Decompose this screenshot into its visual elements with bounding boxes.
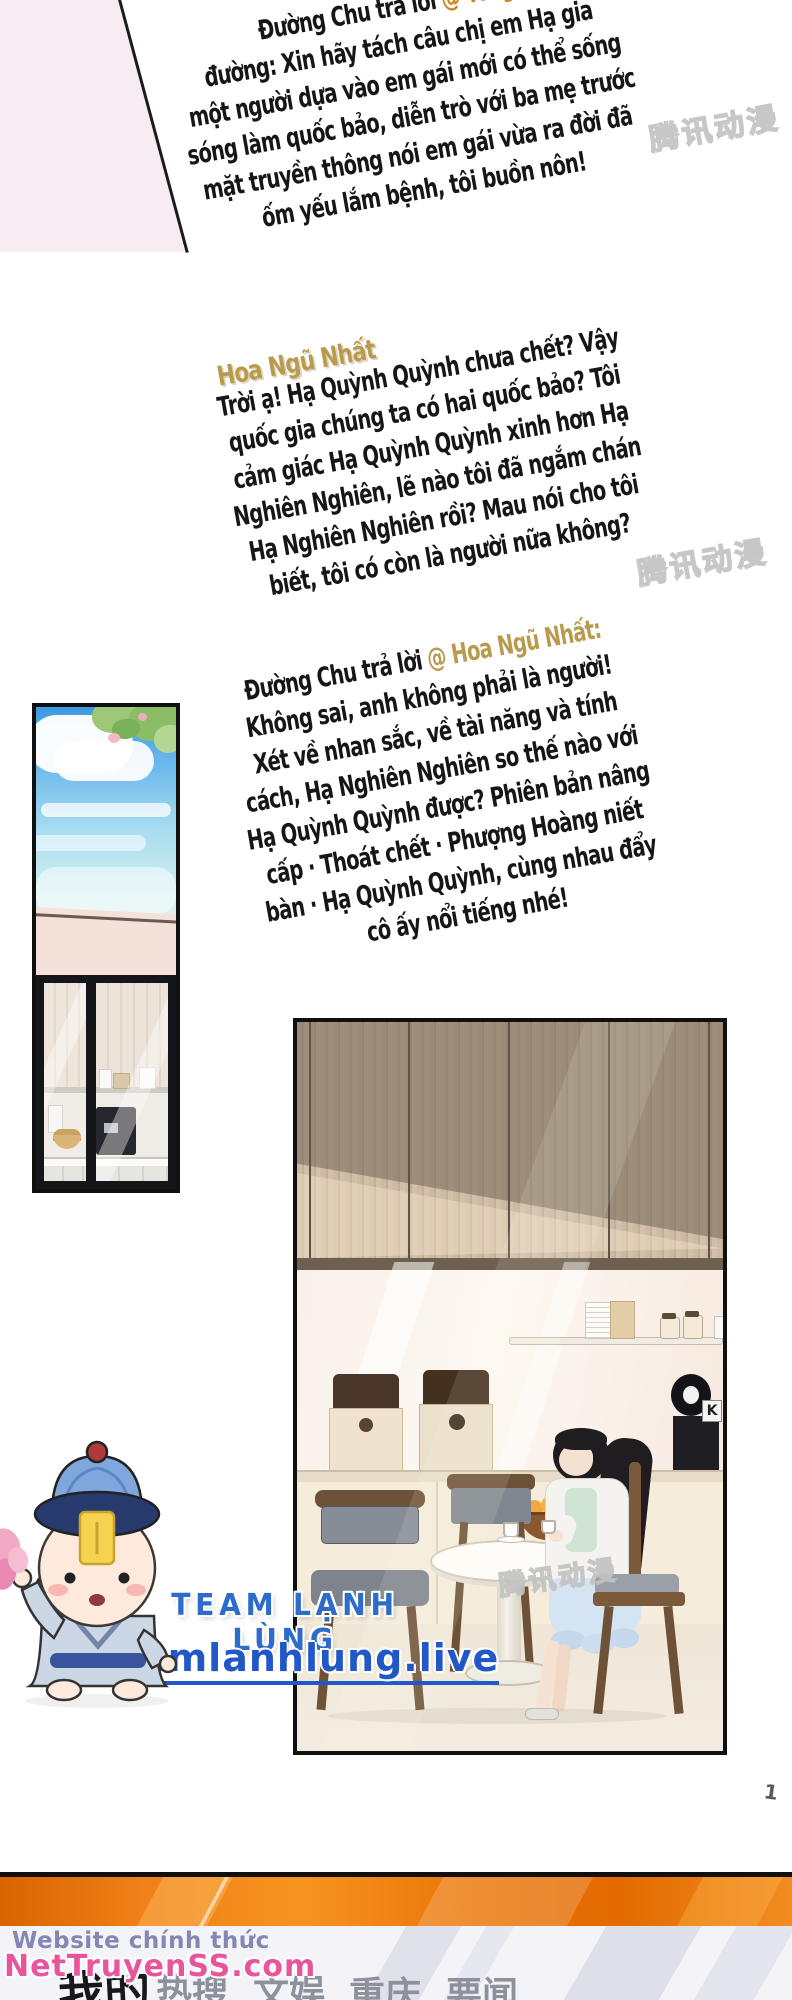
woman-bangs	[555, 1428, 607, 1450]
cloud-streak-2	[32, 835, 146, 851]
window-pane-left	[44, 983, 86, 1181]
cabinet-seam-5	[708, 1022, 710, 1258]
shelf-jar-1	[660, 1317, 680, 1339]
stray-mark: 1	[762, 1779, 779, 1805]
saucer	[497, 1536, 525, 1543]
banner-highlight-2	[417, 1877, 593, 1926]
interior-lower-cabinet	[44, 1166, 86, 1181]
flower-pink	[108, 733, 120, 743]
chibi-eye-left	[65, 1573, 76, 1584]
strip-stripe-4	[688, 1926, 792, 2000]
cloud-large-2	[54, 741, 154, 781]
chibi-sash	[50, 1653, 146, 1668]
chibi-ground-shadow	[25, 1694, 169, 1708]
coffee-machine-1-button	[359, 1418, 373, 1432]
window-pane-right	[96, 983, 168, 1181]
shelf-jar-2	[683, 1315, 703, 1339]
chibi-foot-2	[113, 1680, 147, 1700]
chibi-eye-right	[119, 1573, 130, 1584]
flower-pink-2	[138, 713, 147, 721]
skirt-ruffle-3	[609, 1628, 639, 1648]
chibi-blush-right	[126, 1584, 146, 1596]
comment-reply1: Đường Chu trả lời@ Tôi gà đường: Xin hãy…	[162, 0, 654, 248]
shelf-jar-2-lid	[685, 1311, 699, 1317]
interior-bowl	[53, 1135, 81, 1149]
tab-chongqing[interactable]: 重庆	[349, 1966, 421, 2000]
strip-stripe-3	[558, 1926, 707, 2000]
tab-news[interactable]: 要闻	[446, 1966, 518, 2000]
shelf-jar-1-lid	[662, 1313, 676, 1319]
coffee-maker-label: K	[702, 1400, 722, 1422]
site-watermark-line2: NetTruyenSS.com	[4, 1949, 316, 1984]
comment-reply2: Đường Chu trả lời@ Hoa Ngũ Nhất: Không s…	[192, 602, 697, 974]
chibi-blush-left	[48, 1584, 68, 1596]
leaves-top-3	[154, 725, 180, 753]
chibi-mouth	[89, 1594, 105, 1606]
chibi-foot-1	[47, 1680, 81, 1700]
cabinet-seam-1	[309, 1022, 311, 1258]
orange-banner	[0, 1877, 792, 1926]
woman-cup	[541, 1520, 556, 1534]
shelf-box-right	[714, 1316, 725, 1339]
cabinet-seam-2	[408, 1022, 410, 1258]
beige-box	[610, 1301, 635, 1339]
panel-small-kitchen-window	[32, 703, 180, 1193]
cloud-streak	[41, 803, 171, 817]
cabinet-seam-3	[508, 1022, 510, 1258]
shelf-canister	[99, 1069, 112, 1089]
chair-c-backpost	[629, 1462, 641, 1588]
banner-highlight-3	[677, 1877, 783, 1926]
coffee-maker-kettle-ring	[683, 1386, 699, 1404]
chibi-hat-knob	[87, 1442, 107, 1462]
comic-page: Đường Chu trả lời@ Tôi gà đường: Xin hãy…	[0, 0, 792, 2000]
chair-c-seat	[593, 1592, 685, 1606]
butterfly-pink	[0, 1526, 34, 1598]
tencent-watermark-top: 腾讯动漫	[645, 93, 783, 159]
banner-highlight-1	[137, 1877, 233, 1926]
chibi-hand-2	[160, 1656, 176, 1672]
tissue-box	[585, 1302, 611, 1339]
coffee-machine-1-top	[333, 1374, 399, 1410]
